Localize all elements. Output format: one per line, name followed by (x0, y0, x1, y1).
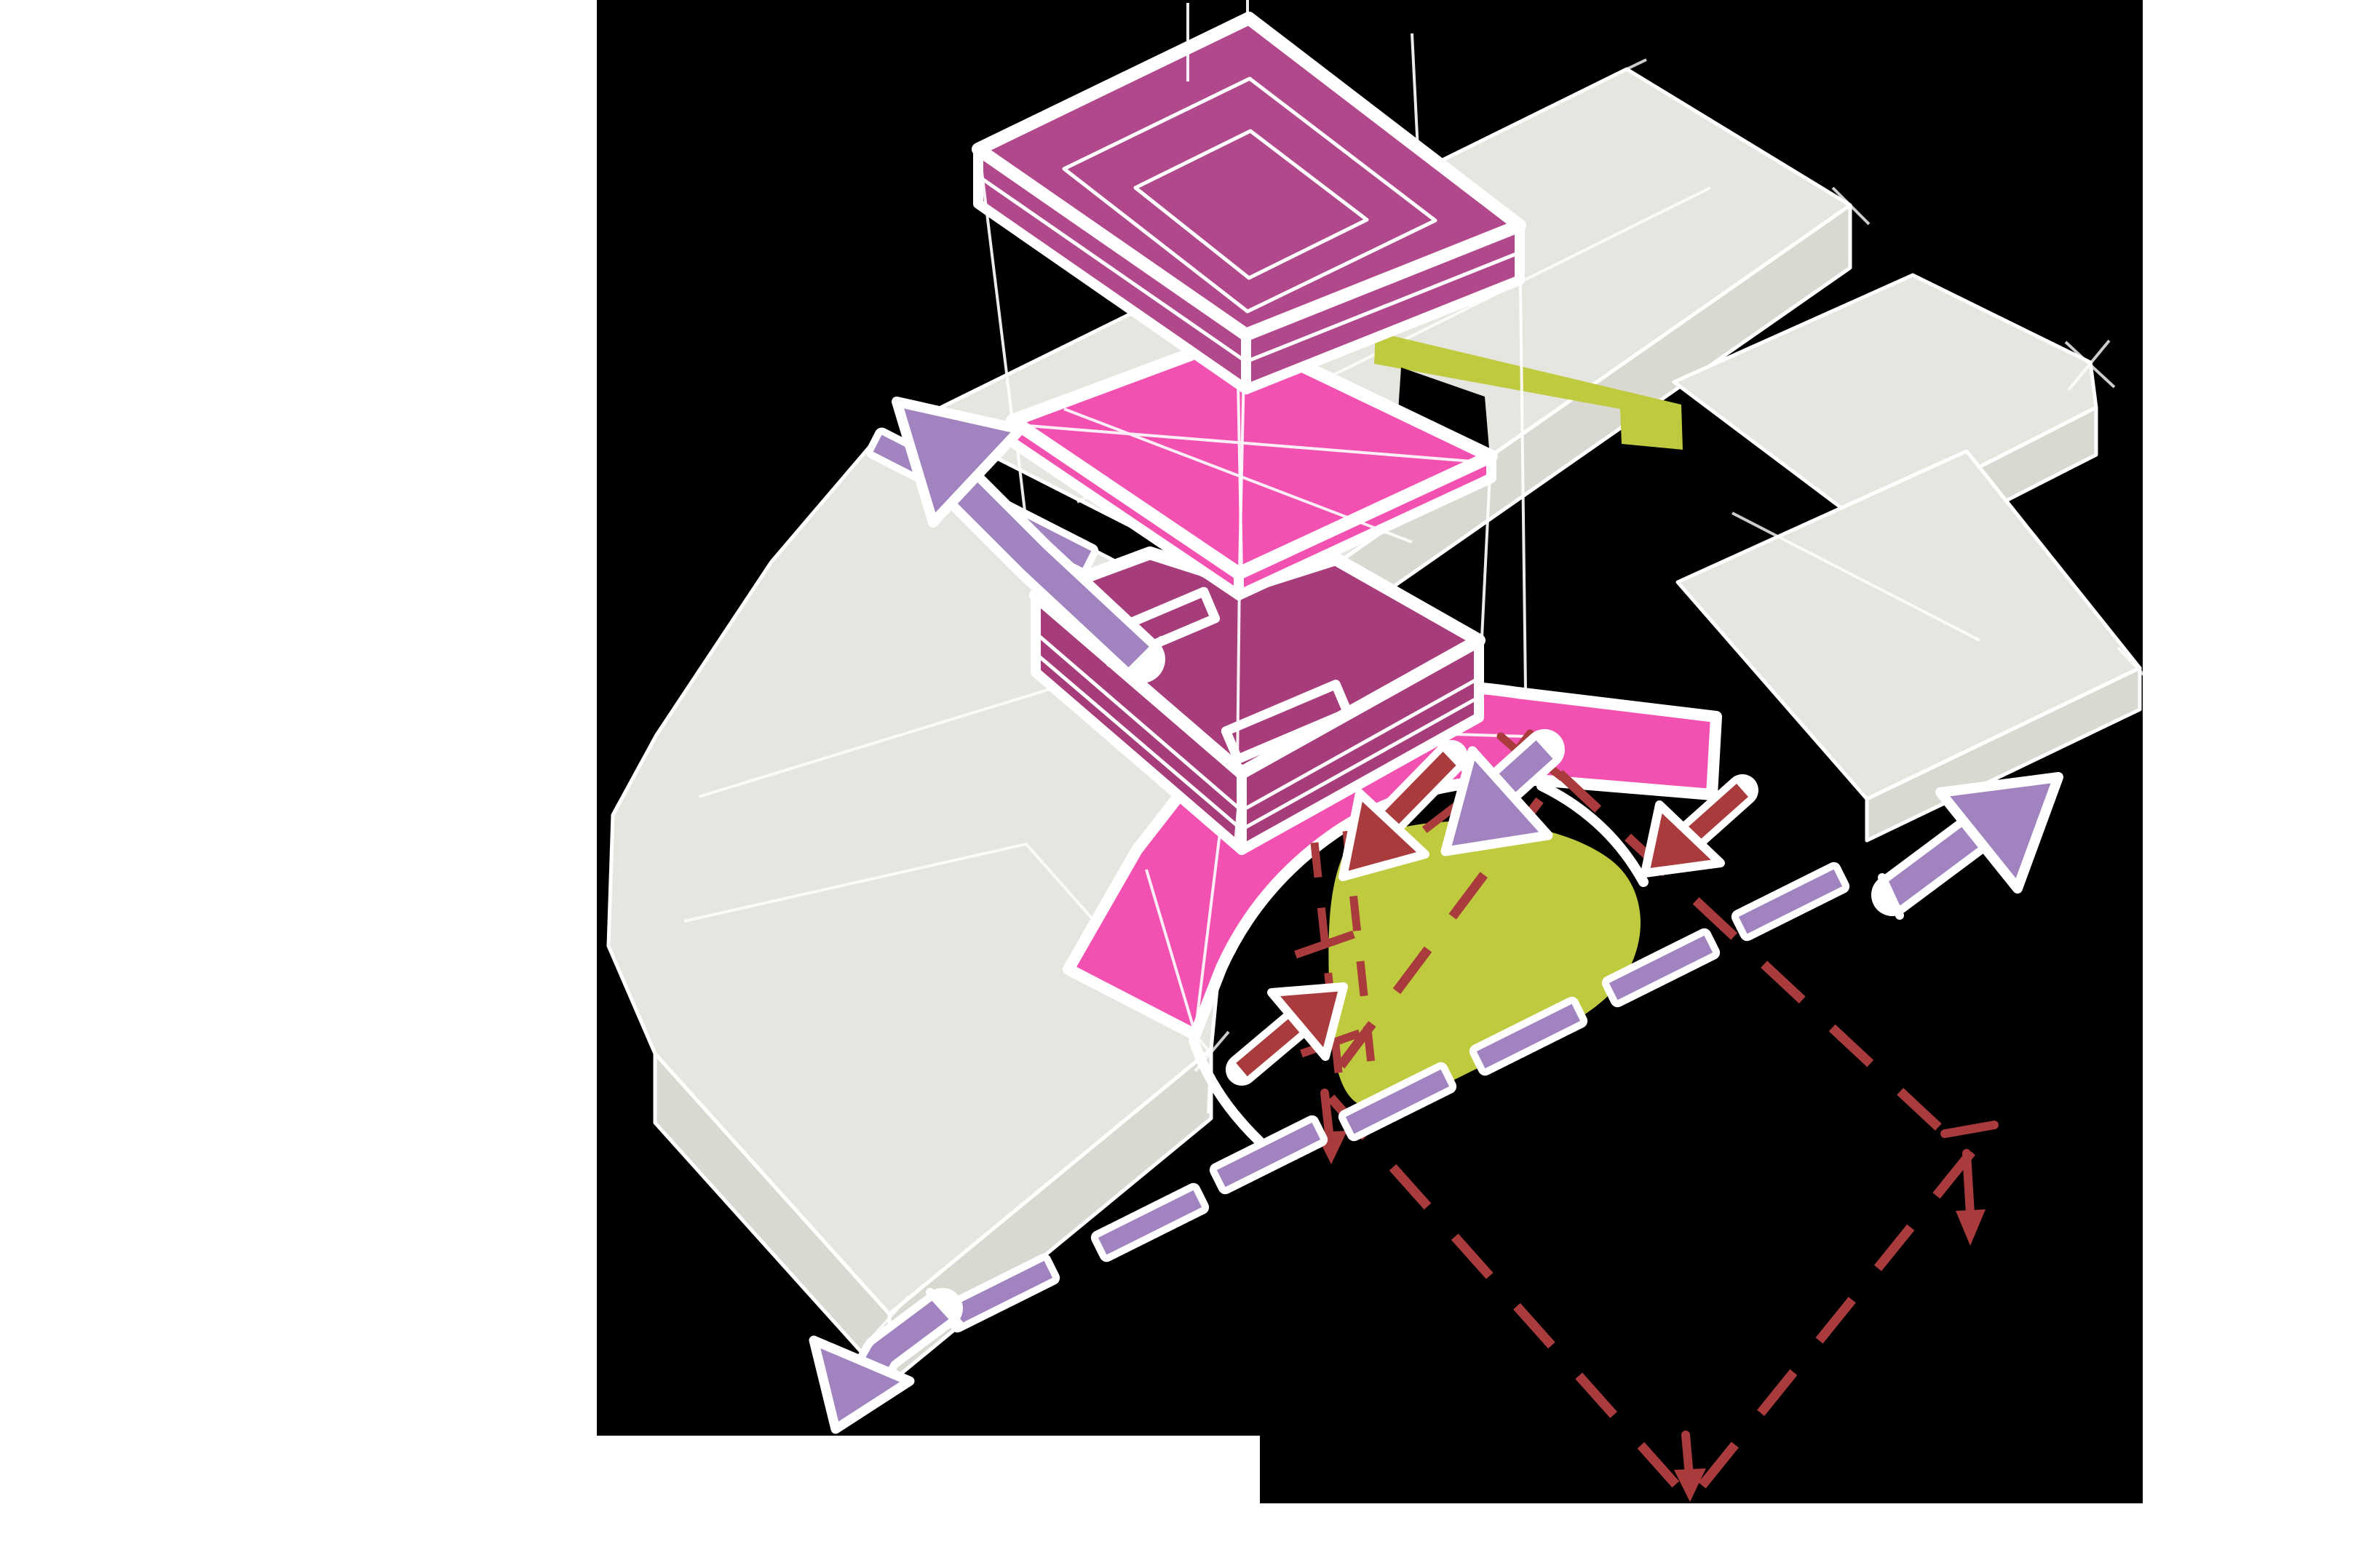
page-margin-left (0, 0, 597, 1547)
page-margin-bottom-left (597, 1436, 1260, 1547)
corner-stem (1967, 1153, 1970, 1214)
diagram-stage (0, 0, 2380, 1547)
page-margin-right (2143, 0, 2380, 1547)
page-margin-bottom-right (1260, 1503, 2143, 1547)
corner-stem (1325, 1093, 1329, 1132)
site-axonometric-diagram (0, 0, 2380, 1547)
